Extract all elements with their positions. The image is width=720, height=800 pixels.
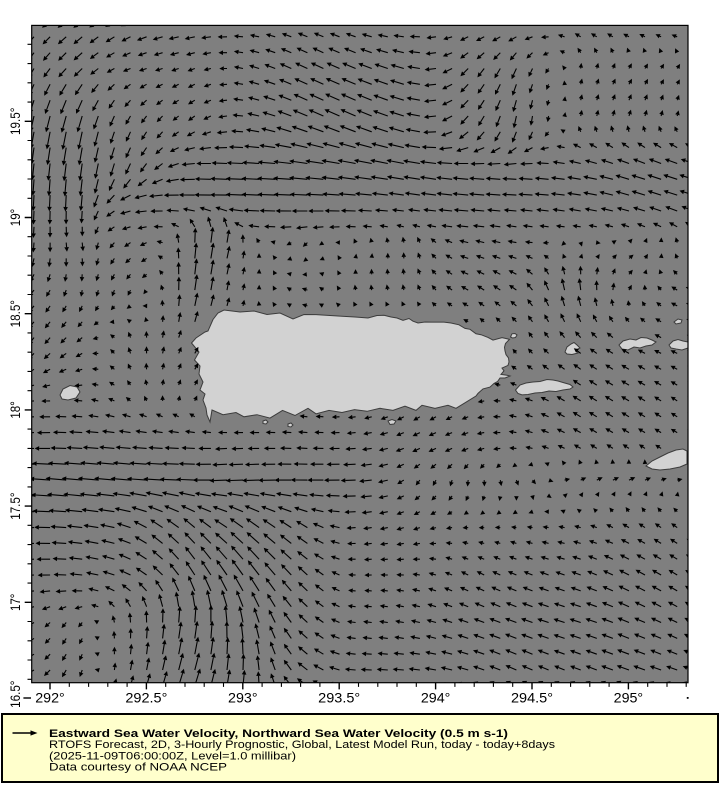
svg-text:295°: 295° bbox=[614, 691, 644, 706]
svg-text:18.5°: 18.5° bbox=[8, 300, 23, 327]
svg-text:18°: 18° bbox=[8, 401, 23, 418]
svg-text:294°: 294° bbox=[421, 691, 451, 706]
svg-text:17°: 17° bbox=[8, 594, 23, 611]
svg-text:293.5°: 293.5° bbox=[318, 691, 360, 706]
svg-text:Data courtesy of NOAA NCEP: Data courtesy of NOAA NCEP bbox=[49, 762, 227, 774]
svg-text:RTOFS Forecast, 2D, 3-Hourly P: RTOFS Forecast, 2D, 3-Hourly Prognostic,… bbox=[49, 739, 556, 751]
svg-text:19°: 19° bbox=[8, 209, 23, 226]
svg-text:16.5°: 16.5° bbox=[8, 681, 23, 708]
svg-text:17.5°: 17.5° bbox=[8, 492, 23, 519]
svg-text:294.5°: 294.5° bbox=[511, 691, 553, 706]
svg-text:292.5°: 292.5° bbox=[125, 691, 167, 706]
svg-text:292°: 292° bbox=[35, 691, 65, 706]
svg-text:19.5°: 19.5° bbox=[8, 108, 23, 135]
svg-text:293°: 293° bbox=[228, 691, 258, 706]
